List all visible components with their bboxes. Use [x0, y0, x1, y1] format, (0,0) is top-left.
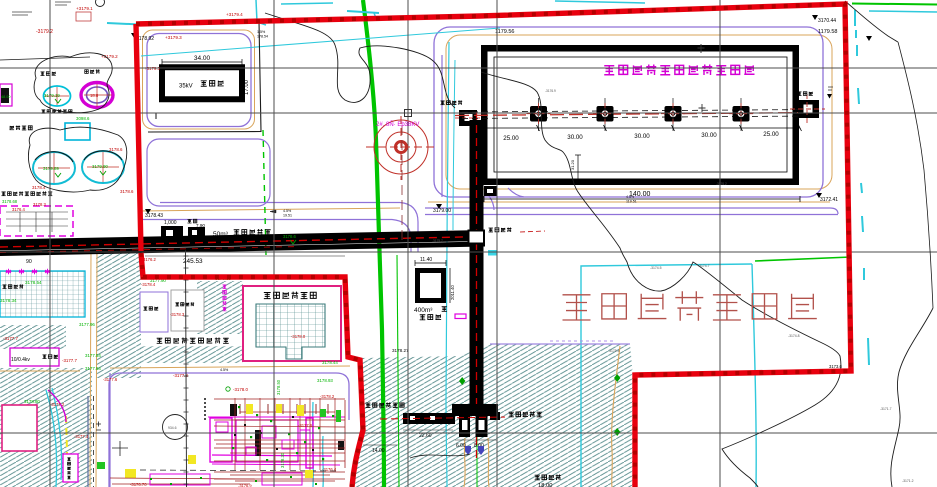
svg-text:6.00: 6.00 [456, 443, 466, 449]
svg-text:-3171.2: -3171.2 [902, 479, 914, 483]
svg-text:934.6: 934.6 [168, 426, 177, 430]
svg-text:18.00: 18.00 [538, 483, 553, 487]
svg-text:2#, 8Ñ· Eþ38KV: 2#, 8Ñ· Eþ38KV [376, 121, 419, 128]
svg-text:1.5%: 1.5% [257, 30, 266, 34]
svg-text:3173.6: 3173.6 [829, 364, 842, 369]
svg-text:2011.40: 2011.40 [450, 285, 455, 300]
svg-text:3178.93: 3178.93 [317, 378, 333, 383]
svg-text:1179.56: 1179.56 [495, 29, 514, 35]
svg-text:35kV: 35kV [179, 84, 193, 90]
svg-text:3178.6: 3178.6 [120, 189, 134, 194]
svg-text:3179.00: 3179.00 [433, 208, 451, 214]
svg-text:22.60: 22.60 [419, 433, 432, 439]
svg-text:-3175.4: -3175.4 [608, 349, 620, 353]
svg-text:3178.68: 3178.68 [2, 199, 18, 204]
svg-text:+3179.2: +3179.2 [101, 54, 118, 59]
svg-text:90: 90 [26, 259, 32, 265]
svg-text:34.00: 34.00 [194, 55, 211, 62]
svg-text:178.54: 178.54 [257, 35, 268, 39]
svg-text:3178.80: 3178.80 [24, 399, 40, 404]
svg-text:-3178.0: -3178.0 [233, 387, 248, 392]
svg-text:+3179.4: +3179.4 [226, 12, 243, 17]
svg-text:31.20: 31.20 [570, 159, 575, 170]
svg-text:3176.2: 3176.2 [143, 257, 156, 262]
svg-text:1,000: 1,000 [164, 220, 177, 226]
svg-text:3170.44: 3170.44 [818, 18, 836, 24]
svg-text:3178.54: 3178.54 [25, 280, 42, 285]
svg-text:3179.90: 3179.90 [92, 164, 108, 169]
svg-text:-3177.4: -3177.4 [74, 434, 89, 439]
svg-text:3178.27: 3178.27 [392, 348, 409, 353]
svg-text:-3178.3: -3178.3 [170, 312, 185, 317]
svg-text:3178.44: 3178.44 [322, 360, 338, 365]
svg-text:-3176.2: -3176.2 [716, 182, 727, 186]
svg-text:-3178.0: -3178.0 [291, 334, 306, 339]
svg-text:-3171.7: -3171.7 [880, 407, 892, 411]
svg-text:25.00: 25.00 [503, 135, 519, 142]
svg-text:3098.6: 3098.6 [76, 116, 90, 121]
svg-text:+3179.1: +3179.1 [76, 6, 93, 11]
svg-text:-3177.6: -3177.6 [298, 423, 313, 428]
svg-text:30.00: 30.00 [701, 132, 717, 139]
svg-text:10/0.4kv: 10/0.4kv [11, 357, 30, 363]
svg-text:-3177.2: -3177.2 [50, 402, 65, 407]
svg-text:4.5%: 4.5% [283, 209, 292, 213]
svg-text:-3176.70: -3176.70 [130, 482, 147, 487]
svg-text:3178.34: 3178.34 [0, 298, 17, 303]
svg-text:3178.50: 3178.50 [276, 379, 281, 395]
svg-text:1179.58: 1179.58 [818, 29, 837, 35]
svg-text:3177.84: 3177.84 [85, 366, 101, 371]
svg-text:-3174.7: -3174.7 [698, 264, 710, 268]
svg-text:119.51: 119.51 [626, 200, 637, 204]
svg-text:14.00: 14.00 [372, 448, 385, 454]
svg-text:+3179.3: +3179.3 [165, 35, 182, 40]
svg-text:4.5%: 4.5% [220, 368, 229, 372]
svg-text:18.8: 18.8 [90, 93, 99, 98]
svg-text:3172.41: 3172.41 [820, 197, 838, 203]
svg-text:3176.4: 3176.4 [12, 207, 25, 212]
svg-text:-3176.9: -3176.9 [238, 483, 252, 487]
svg-text:3179.19: 3179.19 [44, 93, 60, 98]
svg-text:17.00: 17.00 [244, 79, 250, 95]
svg-text:-3175.7: -3175.7 [432, 239, 443, 243]
svg-text:11.40: 11.40 [420, 257, 432, 263]
svg-text:48.00: 48.00 [1, 95, 11, 99]
svg-text:-3176.9: -3176.9 [545, 89, 556, 93]
svg-text:3178.6: 3178.6 [109, 147, 123, 152]
svg-text:3178.30: 3178.30 [280, 452, 285, 468]
svg-text:3177.54: 3177.54 [85, 353, 101, 358]
svg-text:-3179.2: -3179.2 [36, 29, 53, 35]
svg-text:-3177.7: -3177.7 [3, 336, 18, 341]
svg-text:25.00: 25.00 [763, 131, 779, 138]
svg-text:-3174.5: -3174.5 [650, 266, 662, 270]
svg-text:-3174.8: -3174.8 [788, 334, 800, 338]
svg-text:3179.89: 3179.89 [43, 166, 59, 171]
svg-text:400m³: 400m³ [414, 307, 433, 314]
svg-text:-3177.6: -3177.6 [103, 377, 118, 382]
svg-text:3178.6: 3178.6 [283, 234, 296, 239]
svg-text:3178.3: 3178.3 [33, 202, 46, 207]
svg-text:-3178.2: -3178.2 [320, 394, 335, 399]
svg-text:3177.96: 3177.96 [79, 322, 95, 327]
svg-text:3178.43: 3178.43 [145, 213, 163, 219]
svg-text:-3177.7: -3177.7 [62, 358, 77, 363]
svg-text:19.51: 19.51 [283, 214, 292, 218]
svg-text:4.5%: 4.5% [626, 195, 635, 199]
svg-text:30.00: 30.00 [634, 133, 650, 140]
svg-text:30.00: 30.00 [567, 134, 583, 141]
